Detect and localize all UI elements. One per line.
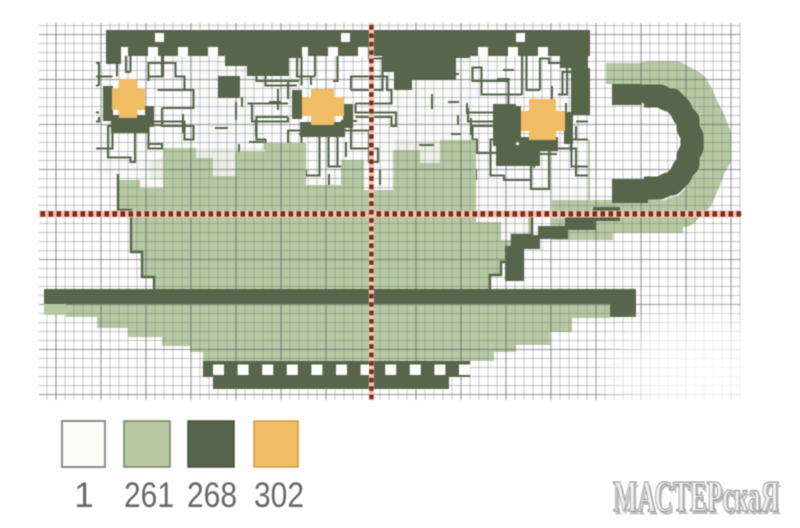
svg-text:МАСТЕРскаЯ: МАСТЕРскаЯ	[613, 472, 779, 521]
svg-text:268: 268	[187, 476, 237, 515]
svg-text:261: 261	[124, 476, 174, 515]
svg-text:302: 302	[254, 476, 304, 515]
svg-text:1: 1	[74, 476, 93, 515]
